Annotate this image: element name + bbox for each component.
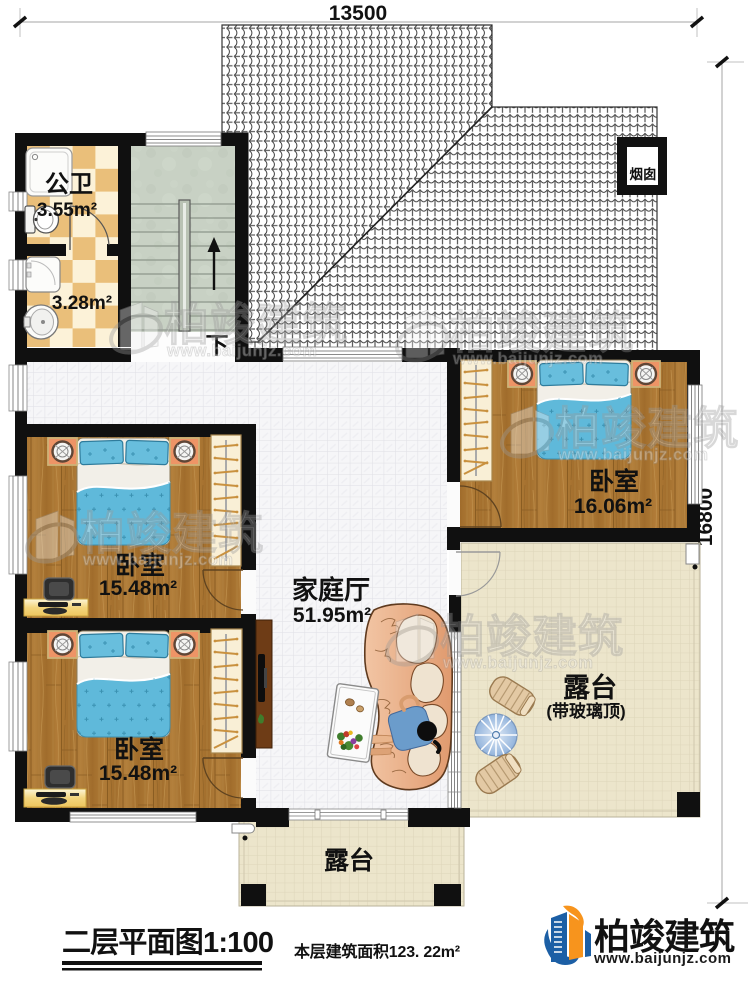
svg-text:露台: 露台 <box>563 672 617 703</box>
svg-text:www.baijunjz.com: www.baijunjz.com <box>593 950 731 967</box>
svg-text:3.55m²: 3.55m² <box>37 200 97 221</box>
svg-text:露台: 露台 <box>324 846 374 875</box>
svg-text:3.28m²: 3.28m² <box>52 293 112 314</box>
svg-text:家庭厅: 家庭厅 <box>292 575 370 605</box>
svg-text:本层建筑面积123. 22m²: 本层建筑面积123. 22m² <box>294 942 460 961</box>
svg-text:公卫: 公卫 <box>45 171 93 198</box>
svg-text:13500: 13500 <box>329 2 387 25</box>
svg-text:(带玻璃顶): (带玻璃顶) <box>546 701 625 721</box>
svg-text:卧室: 卧室 <box>589 467 639 496</box>
svg-text:15.48m²: 15.48m² <box>99 762 177 785</box>
svg-text:15.48m²: 15.48m² <box>99 577 177 600</box>
svg-text:16.06m²: 16.06m² <box>574 495 652 518</box>
svg-text:烟囱: 烟囱 <box>630 166 657 182</box>
svg-text:51.95m²: 51.95m² <box>293 604 371 627</box>
svg-text:二层平面图1:100: 二层平面图1:100 <box>62 927 273 959</box>
svg-text:卧室: 卧室 <box>114 735 164 764</box>
